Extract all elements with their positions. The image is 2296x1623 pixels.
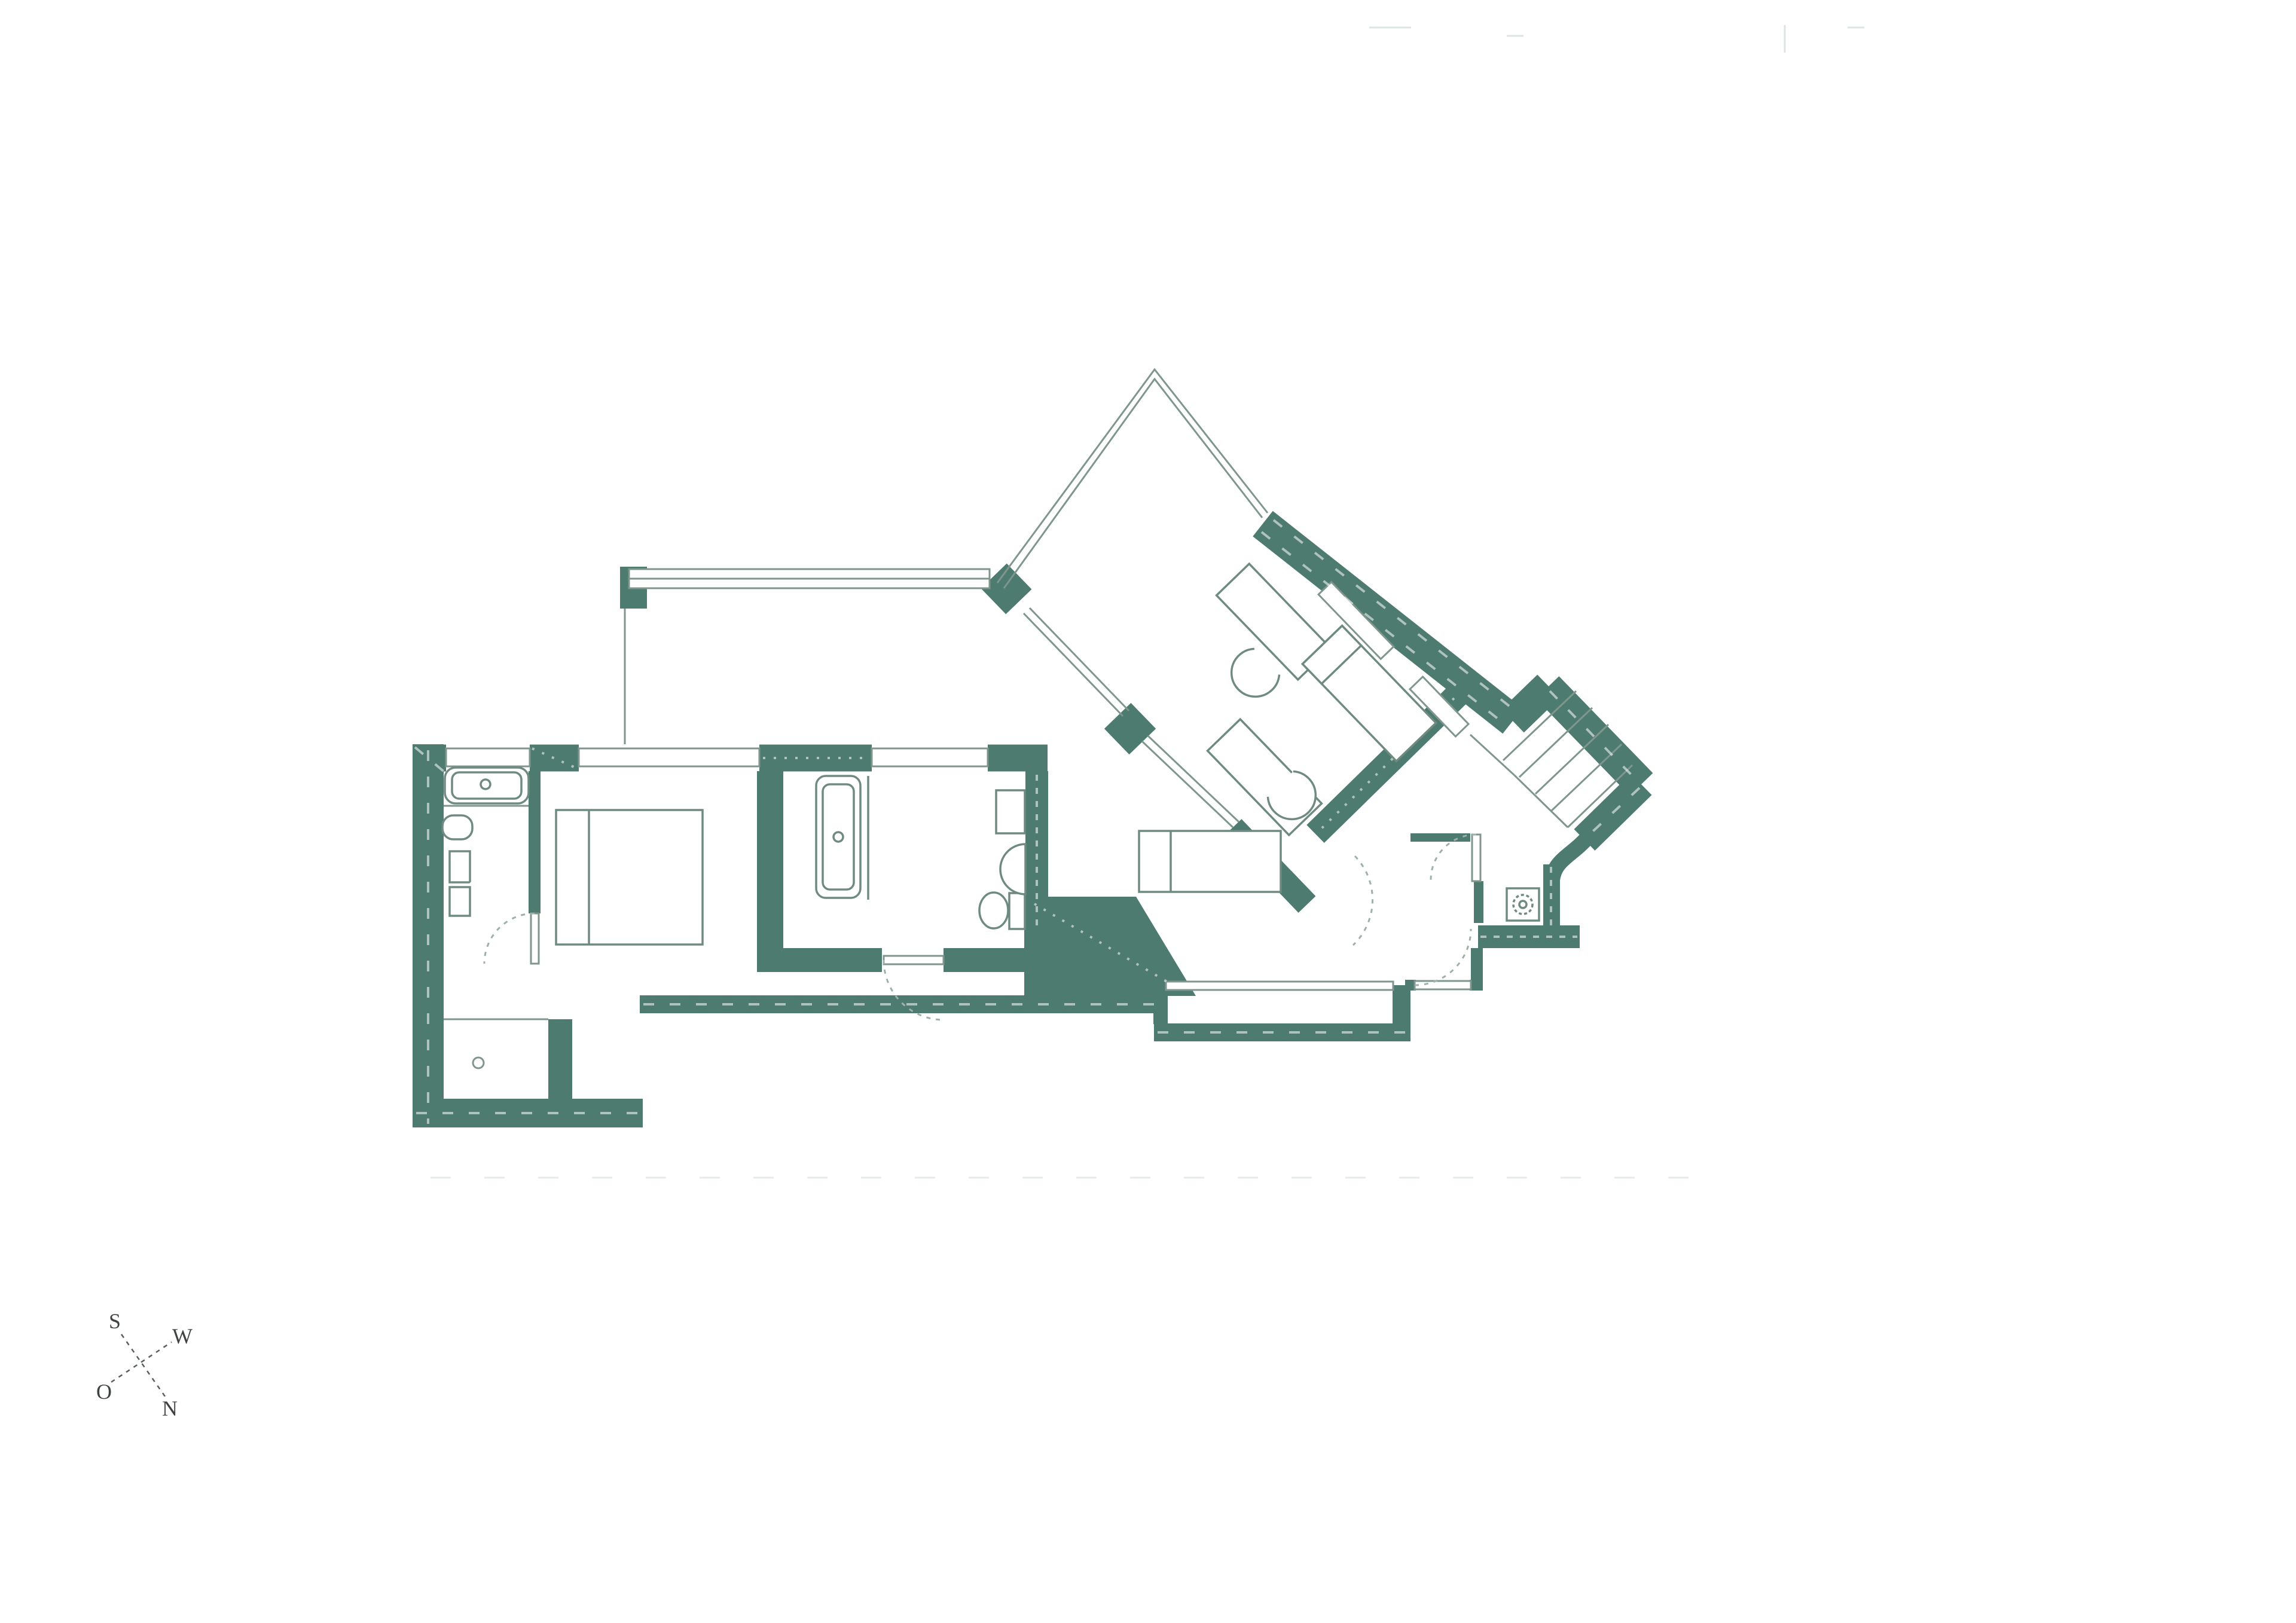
floor-plan-page: S W O N — [0, 0, 2296, 1623]
terrace-railing-outer — [997, 369, 1268, 583]
window-bath1 — [446, 748, 530, 766]
bathtub-drain — [481, 780, 490, 789]
bath2-cabinet — [996, 790, 1025, 833]
toilet-tank — [1009, 893, 1025, 929]
compass-label-s: S — [109, 1309, 121, 1333]
door-arc-bath1 — [484, 913, 535, 964]
door-arc-room2 — [1353, 856, 1373, 945]
door-leaf-vestibule — [1472, 835, 1480, 881]
toilet-icon — [979, 893, 1008, 928]
compass-rose: S W O N — [96, 1309, 193, 1420]
terrace-railing-inner — [1004, 379, 1262, 588]
floor-plan-drawing: S W O N — [0, 0, 2296, 1623]
compass-line-sn — [121, 1334, 165, 1396]
wall-fill-layer — [620, 564, 1196, 996]
storage-drain — [473, 1057, 484, 1068]
compass-label-w: W — [172, 1324, 193, 1348]
double-bed-icon — [556, 810, 703, 945]
washing-machine-door — [1519, 901, 1526, 908]
door-leaf-entry — [1415, 981, 1471, 989]
wall-sink-icon — [1000, 844, 1025, 894]
door-leaf-bath2 — [884, 956, 944, 964]
door-arc-entry — [1415, 929, 1471, 985]
single-bed-icon — [1139, 831, 1281, 892]
vanity-cabinet-upper — [450, 851, 470, 882]
sink-icon — [442, 815, 472, 839]
window-bedroom — [579, 748, 759, 766]
bathtub2-drain — [833, 832, 843, 842]
vanity-cabinet-lower — [450, 887, 470, 916]
wing-glazing-a1 — [1024, 613, 1123, 716]
window-loggia — [1166, 982, 1393, 990]
compass-label-n: N — [162, 1396, 178, 1420]
compass-label-o: O — [96, 1380, 112, 1404]
compass-line-ow — [111, 1342, 172, 1382]
wing-glazing-a2 — [1030, 608, 1129, 711]
stair-railing-lower — [1515, 775, 1568, 827]
door-leaf-bath1 — [531, 913, 539, 964]
window-bath2 — [872, 748, 988, 766]
